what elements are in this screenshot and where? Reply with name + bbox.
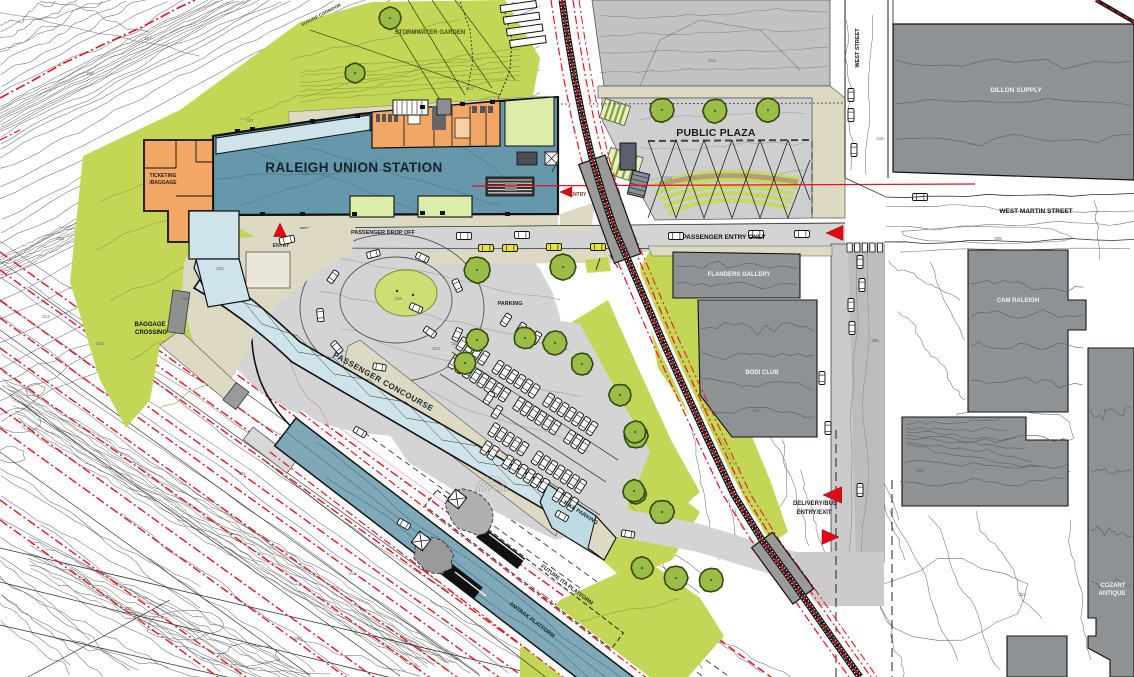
svg-text:317: 317 bbox=[466, 86, 474, 91]
svg-text:318: 318 bbox=[86, 71, 94, 76]
svg-text:CAM RALEIGH: CAM RALEIGH bbox=[997, 298, 1039, 304]
svg-text:COZART: COZART bbox=[1101, 583, 1126, 589]
svg-text:317: 317 bbox=[144, 36, 152, 41]
svg-text:316: 316 bbox=[181, 296, 189, 301]
svg-text:308: 308 bbox=[994, 236, 1002, 241]
svg-text:313: 313 bbox=[432, 346, 440, 351]
svg-text:318: 318 bbox=[394, 296, 402, 301]
svg-text:305: 305 bbox=[752, 408, 760, 413]
svg-text:PASSENGER ENTRY ONLY: PASSENGER ENTRY ONLY bbox=[682, 234, 766, 241]
svg-text:CROSSING: CROSSING bbox=[135, 330, 167, 336]
svg-text:PASSENGER DROP OFF: PASSENGER DROP OFF bbox=[351, 230, 416, 236]
svg-text:312: 312 bbox=[348, 571, 356, 576]
svg-text:308: 308 bbox=[871, 338, 879, 343]
svg-text:315: 315 bbox=[301, 171, 309, 176]
svg-text:ENTRY/EXIT: ENTRY/EXIT bbox=[796, 510, 831, 516]
svg-text:296: 296 bbox=[294, 636, 302, 641]
svg-text:ENTRY: ENTRY bbox=[570, 192, 587, 198]
svg-text:WEST MARTIN STREET: WEST MARTIN STREET bbox=[999, 208, 1072, 215]
svg-text:315: 315 bbox=[96, 341, 104, 346]
svg-text:313: 313 bbox=[1018, 592, 1026, 597]
svg-text:314: 314 bbox=[451, 341, 459, 346]
svg-text:315: 315 bbox=[216, 266, 224, 271]
svg-text:/BAGGAGE: /BAGGAGE bbox=[149, 180, 177, 186]
svg-text:BODI CLUB: BODI CLUB bbox=[745, 370, 779, 376]
svg-text:318: 318 bbox=[56, 236, 64, 241]
svg-text:300: 300 bbox=[124, 606, 132, 611]
svg-text:317: 317 bbox=[246, 118, 254, 123]
svg-text:TICKETING: TICKETING bbox=[150, 173, 177, 179]
svg-text:DILLON SUPPLY: DILLON SUPPLY bbox=[990, 87, 1042, 94]
svg-text:BAGGAGE: BAGGAGE bbox=[134, 322, 165, 328]
svg-text:314: 314 bbox=[42, 314, 50, 319]
svg-text:311: 311 bbox=[238, 471, 246, 476]
svg-text:STORMWATER GARDEN: STORMWATER GARDEN bbox=[395, 30, 465, 36]
svg-text:309: 309 bbox=[916, 468, 924, 473]
svg-text:WEST STREET: WEST STREET bbox=[855, 28, 861, 68]
svg-text:PUBLIC PLAZA: PUBLIC PLAZA bbox=[676, 127, 756, 139]
svg-text:DELIVERY/BUS: DELIVERY/BUS bbox=[793, 501, 837, 507]
svg-text:PARKING: PARKING bbox=[498, 301, 523, 307]
svg-text:315: 315 bbox=[876, 136, 884, 141]
svg-text:ANTIQUE: ANTIQUE bbox=[1099, 591, 1126, 597]
svg-text:RALEIGH UNION STATION: RALEIGH UNION STATION bbox=[265, 160, 442, 175]
svg-text:313: 313 bbox=[664, 176, 672, 181]
svg-text:FLANDERS GALLERY: FLANDERS GALLERY bbox=[708, 272, 771, 278]
svg-text:314: 314 bbox=[708, 58, 716, 63]
